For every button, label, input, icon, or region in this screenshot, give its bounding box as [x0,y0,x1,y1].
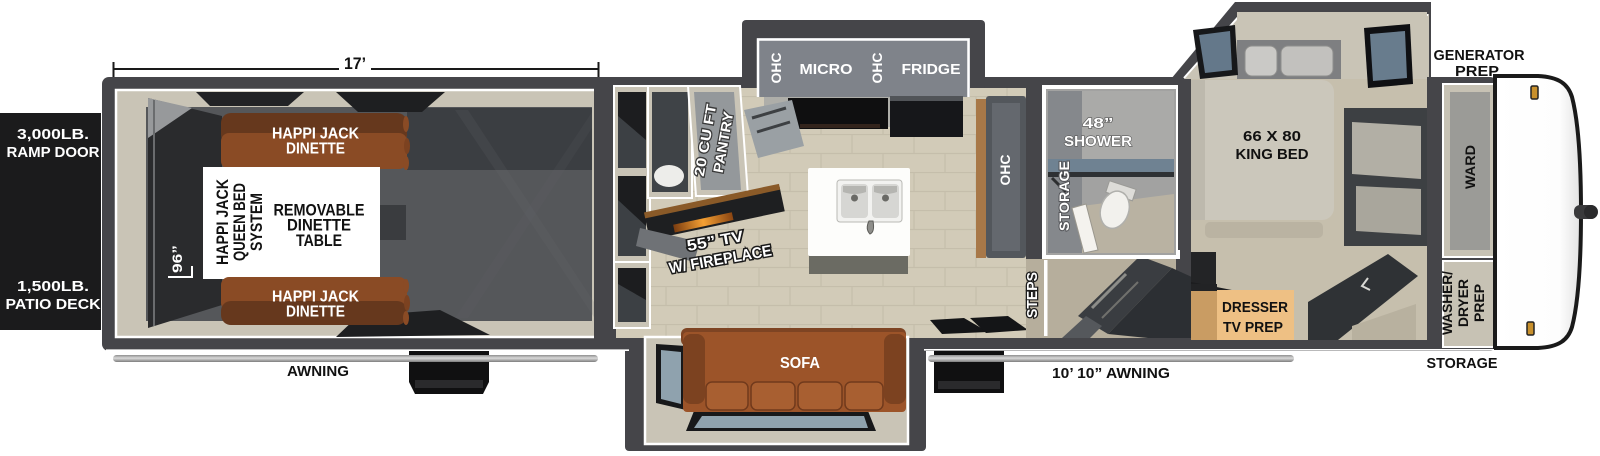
svg-text:SYSTEM: SYSTEM [247,193,266,251]
svg-text:PREP: PREP [1472,284,1487,322]
svg-text:17’: 17’ [344,54,366,73]
svg-text:STEPS: STEPS [1024,272,1041,318]
svg-text:KING BED: KING BED [1236,146,1309,163]
svg-text:MICRO: MICRO [800,61,853,78]
svg-text:DINETTE: DINETTE [286,304,345,321]
svg-text:SHOWER: SHOWER [1064,133,1132,150]
svg-text:3,000LB.: 3,000LB. [17,126,89,143]
svg-text:STORAGE: STORAGE [1427,355,1498,372]
svg-text:SOFA: SOFA [780,355,820,372]
svg-text:DINETTE: DINETTE [286,141,345,158]
svg-text:DRESSER: DRESSER [1222,299,1288,316]
svg-text:48”: 48” [1083,115,1114,132]
svg-text:GENERATOR: GENERATOR [1434,47,1525,64]
svg-text:PATIO DECK: PATIO DECK [6,296,101,313]
svg-text:OHC: OHC [997,155,1013,186]
svg-text:WASHER/: WASHER/ [1440,271,1455,335]
svg-text:TV PREP: TV PREP [1223,319,1283,336]
svg-text:66 X 80: 66 X 80 [1243,128,1301,145]
svg-text:TABLE: TABLE [296,231,342,250]
svg-text:RAMP DOOR: RAMP DOOR [7,144,100,161]
svg-text:DRYER: DRYER [1456,279,1471,327]
svg-text:10’ 10” AWNING: 10’ 10” AWNING [1052,365,1170,382]
svg-text:1,500LB.: 1,500LB. [17,278,89,295]
svg-text:PREP: PREP [1455,63,1499,80]
svg-text:OHC: OHC [768,53,784,84]
svg-text:AWNING: AWNING [287,363,349,380]
svg-text:FRIDGE: FRIDGE [902,61,961,78]
svg-text:OHC: OHC [869,53,885,84]
svg-text:STORAGE: STORAGE [1057,161,1072,231]
svg-text:96”: 96” [169,245,185,273]
svg-text:WARD: WARD [1462,145,1478,189]
